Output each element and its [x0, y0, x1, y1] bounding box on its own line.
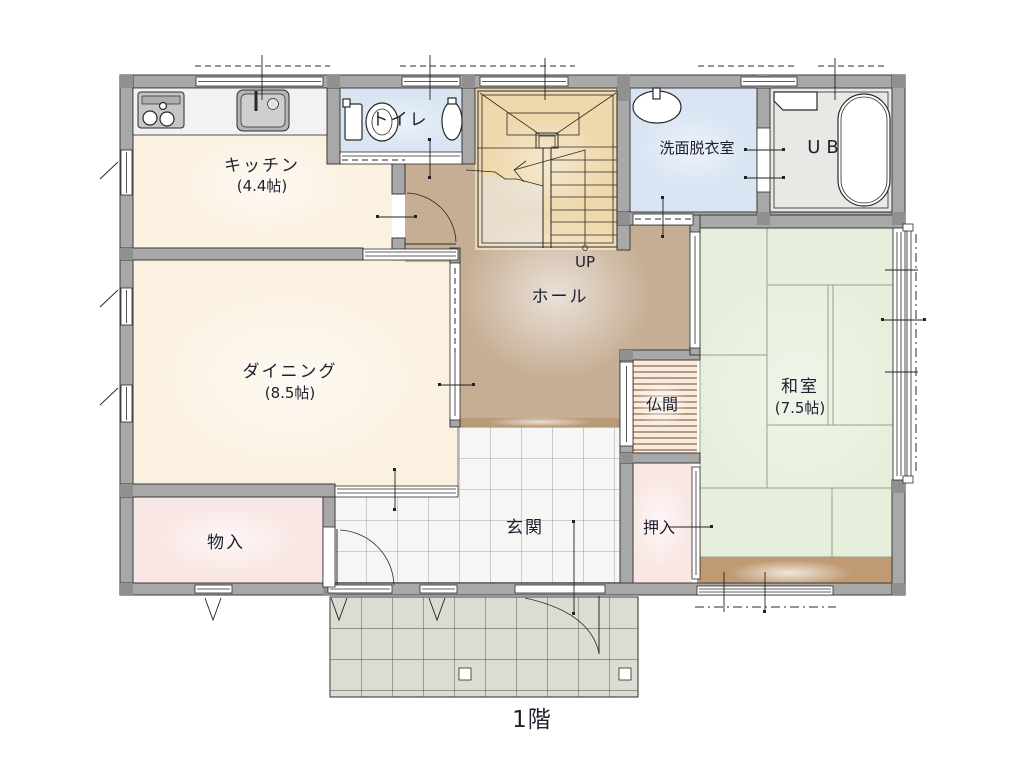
label-washitsu-size: (7.5帖)	[775, 399, 826, 417]
label-butsuma: 仏間	[646, 395, 678, 414]
label-hall: ホール	[532, 287, 589, 307]
wall-dining-storage	[120, 484, 335, 497]
label-storage: 物入	[207, 533, 245, 553]
wall-kitchen-toilet	[327, 88, 340, 164]
sliding-window	[893, 228, 905, 480]
porch-tile-grid	[330, 597, 638, 697]
porch-post	[619, 668, 631, 680]
front-door-opening	[515, 585, 605, 593]
opening-dining-genkan	[335, 486, 458, 497]
window-swing-mark	[205, 598, 221, 620]
label-dining-size: (8.5帖)	[265, 384, 316, 402]
sliding-door-toilet	[340, 152, 462, 164]
bathtub-icon	[838, 94, 890, 206]
sash-cap	[903, 476, 913, 483]
sash-cap	[903, 224, 913, 231]
door-storage	[323, 527, 335, 587]
hand-basin-icon	[442, 102, 462, 140]
wall-stairs-washroom	[617, 88, 630, 250]
label-up: UP	[575, 253, 595, 271]
porch-post	[459, 668, 471, 680]
label-kitchen-size: (4.4帖)	[237, 177, 288, 195]
folding-door-bath	[757, 128, 770, 192]
wall-right-upper	[892, 75, 905, 228]
wall-kitchen-hall-stub	[392, 160, 405, 194]
wall-right-lower	[892, 480, 905, 595]
wall-washitsu-top	[697, 215, 905, 228]
label-genkan: 玄関	[506, 518, 544, 538]
floorplan-drawing: キッチン (4.4帖) トイレ 洗面脱衣室 UB ホール UP ダイニング (8…	[0, 0, 1024, 768]
label-washroom: 洗面脱衣室	[659, 139, 734, 157]
label-oshiire: 押入	[643, 518, 675, 537]
label-bath: UB	[807, 137, 845, 158]
label-washitsu: 和室	[781, 377, 819, 397]
label-kitchen: キッチン	[224, 156, 300, 176]
wall-toilet-stairs	[462, 88, 475, 164]
toilet-icon	[345, 104, 362, 140]
opening-dining-hall	[363, 249, 458, 260]
wall-kitchen-dining	[120, 248, 363, 260]
label-toilet: トイレ	[372, 110, 429, 130]
floorplan-page: { "meta": { "floor_label": "1階", "up_lab…	[0, 0, 1024, 768]
label-dining: ダイニング	[243, 362, 338, 382]
floor-label: 1階	[512, 707, 552, 733]
bath-counter-icon	[774, 92, 817, 110]
